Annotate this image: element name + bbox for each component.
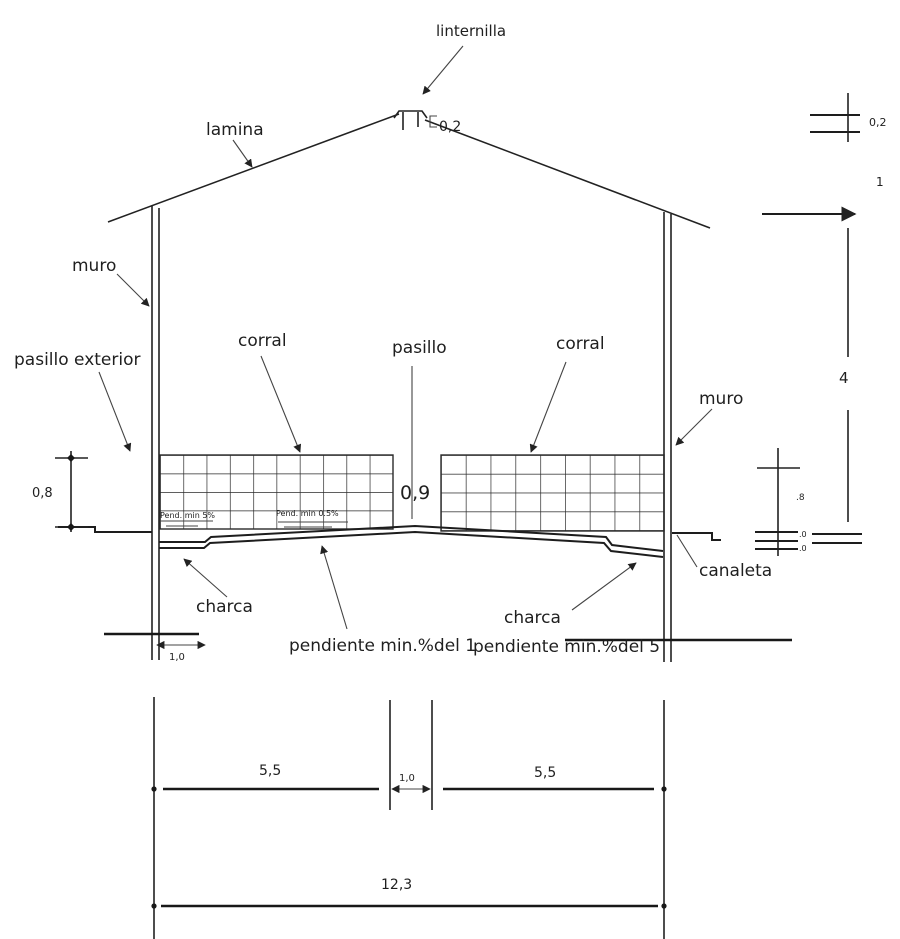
corral-section-drawing: linternilla lamina 0,2 muro pasillo exte… [0, 0, 900, 939]
dim-fence-height-left [55, 451, 88, 532]
dim-right-0-bottom: .0 [799, 544, 807, 553]
roof-outline [108, 114, 710, 228]
charca-left-leader [184, 559, 227, 597]
dim-right-8: .8 [796, 493, 805, 503]
label-linternilla: linternilla [436, 22, 506, 40]
dim-fence-height: 0,8 [32, 486, 53, 501]
label-pend-min-5: Pend. min 5% [160, 511, 215, 520]
label-charca-left: charca [196, 597, 253, 617]
right-wall [664, 212, 671, 662]
muro-right-leader [676, 409, 712, 445]
label-lamina: lamina [206, 120, 264, 140]
pendiente-1-leader [322, 546, 347, 629]
label-pasillo: pasillo [392, 338, 447, 358]
corral-right-leader [531, 362, 566, 452]
lantern-shape [394, 111, 437, 130]
label-canaleta: canaleta [699, 561, 772, 581]
muro-left-leader [117, 274, 149, 306]
dim-span-pasillo: 1,0 [399, 773, 415, 784]
technical-drawing-canvas: linternilla lamina 0,2 muro pasillo exte… [0, 0, 900, 939]
right-dimension-stack [755, 93, 862, 556]
dim-span-total: 12,3 [381, 877, 412, 893]
label-corral-left: corral [238, 331, 287, 351]
label-pasillo-exterior: pasillo exterior [14, 350, 141, 370]
charca-right-leader [572, 563, 636, 610]
dim-right-4: 4 [839, 369, 849, 387]
linternilla-leader [423, 46, 463, 94]
corral-fence-right [441, 455, 664, 531]
dim-span-corral-left: 5,5 [259, 763, 281, 779]
dim-lantern-height: 0,2 [439, 119, 461, 135]
canaleta-leader [677, 535, 697, 567]
left-wall [152, 206, 159, 660]
dim-span-corral-right: 5,5 [534, 765, 556, 781]
label-muro-right: muro [699, 389, 743, 409]
corral-left-leader [261, 356, 300, 452]
dim-right-1: 1 [876, 175, 884, 189]
pasillo-exterior-leader [99, 372, 130, 451]
label-pendiente-min-1: pendiente min.%del 1 [289, 636, 476, 656]
label-pend-min-05: Pend. min 0.5% [276, 509, 339, 518]
dim-pasillo-depth: 0,9 [400, 482, 430, 504]
label-pendiente-min-5: pendiente min.%del 5 [473, 637, 660, 657]
lamina-leader [233, 140, 252, 167]
label-corral-right: corral [556, 334, 605, 354]
bottom-dimensions [151, 697, 666, 939]
dim-exterior-walk-width: 1,0 [169, 652, 185, 663]
label-charca-right: charca [504, 608, 561, 628]
label-muro-left: muro [72, 256, 116, 276]
dim-right-02: 0,2 [869, 116, 887, 129]
dim-right-0-top: .0 [799, 530, 807, 539]
